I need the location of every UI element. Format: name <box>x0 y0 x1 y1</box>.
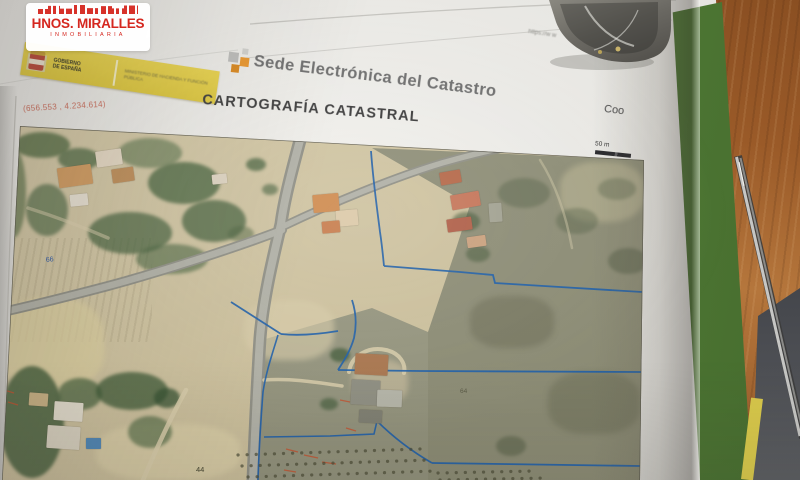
spain-coat-of-arms-icon <box>28 50 46 71</box>
light-field <box>244 300 334 360</box>
swimming-pool <box>86 438 101 449</box>
watermark-title: HNOS. MIRALLES <box>26 16 150 31</box>
agency-watermark: HNOS. MIRALLES INMOBILIARIA <box>26 3 150 51</box>
dark-ground <box>470 296 554 348</box>
logo-divider <box>113 59 119 85</box>
skyline-graphic-icon <box>38 5 138 14</box>
watermark-subtitle: INMOBILIARIA <box>26 32 150 38</box>
ministry-name: MINISTERIO DE HACIENDA Y FUNCIÓN PÚBLICA <box>124 69 213 92</box>
farmhouse <box>354 353 388 376</box>
photo-of-cadastral-printout: GOBIERNO DE ESPAÑA MINISTERIO DE HACIEND… <box>0 0 800 480</box>
catastro-squares-icon <box>227 49 254 76</box>
page-fold-shadow <box>592 0 700 480</box>
